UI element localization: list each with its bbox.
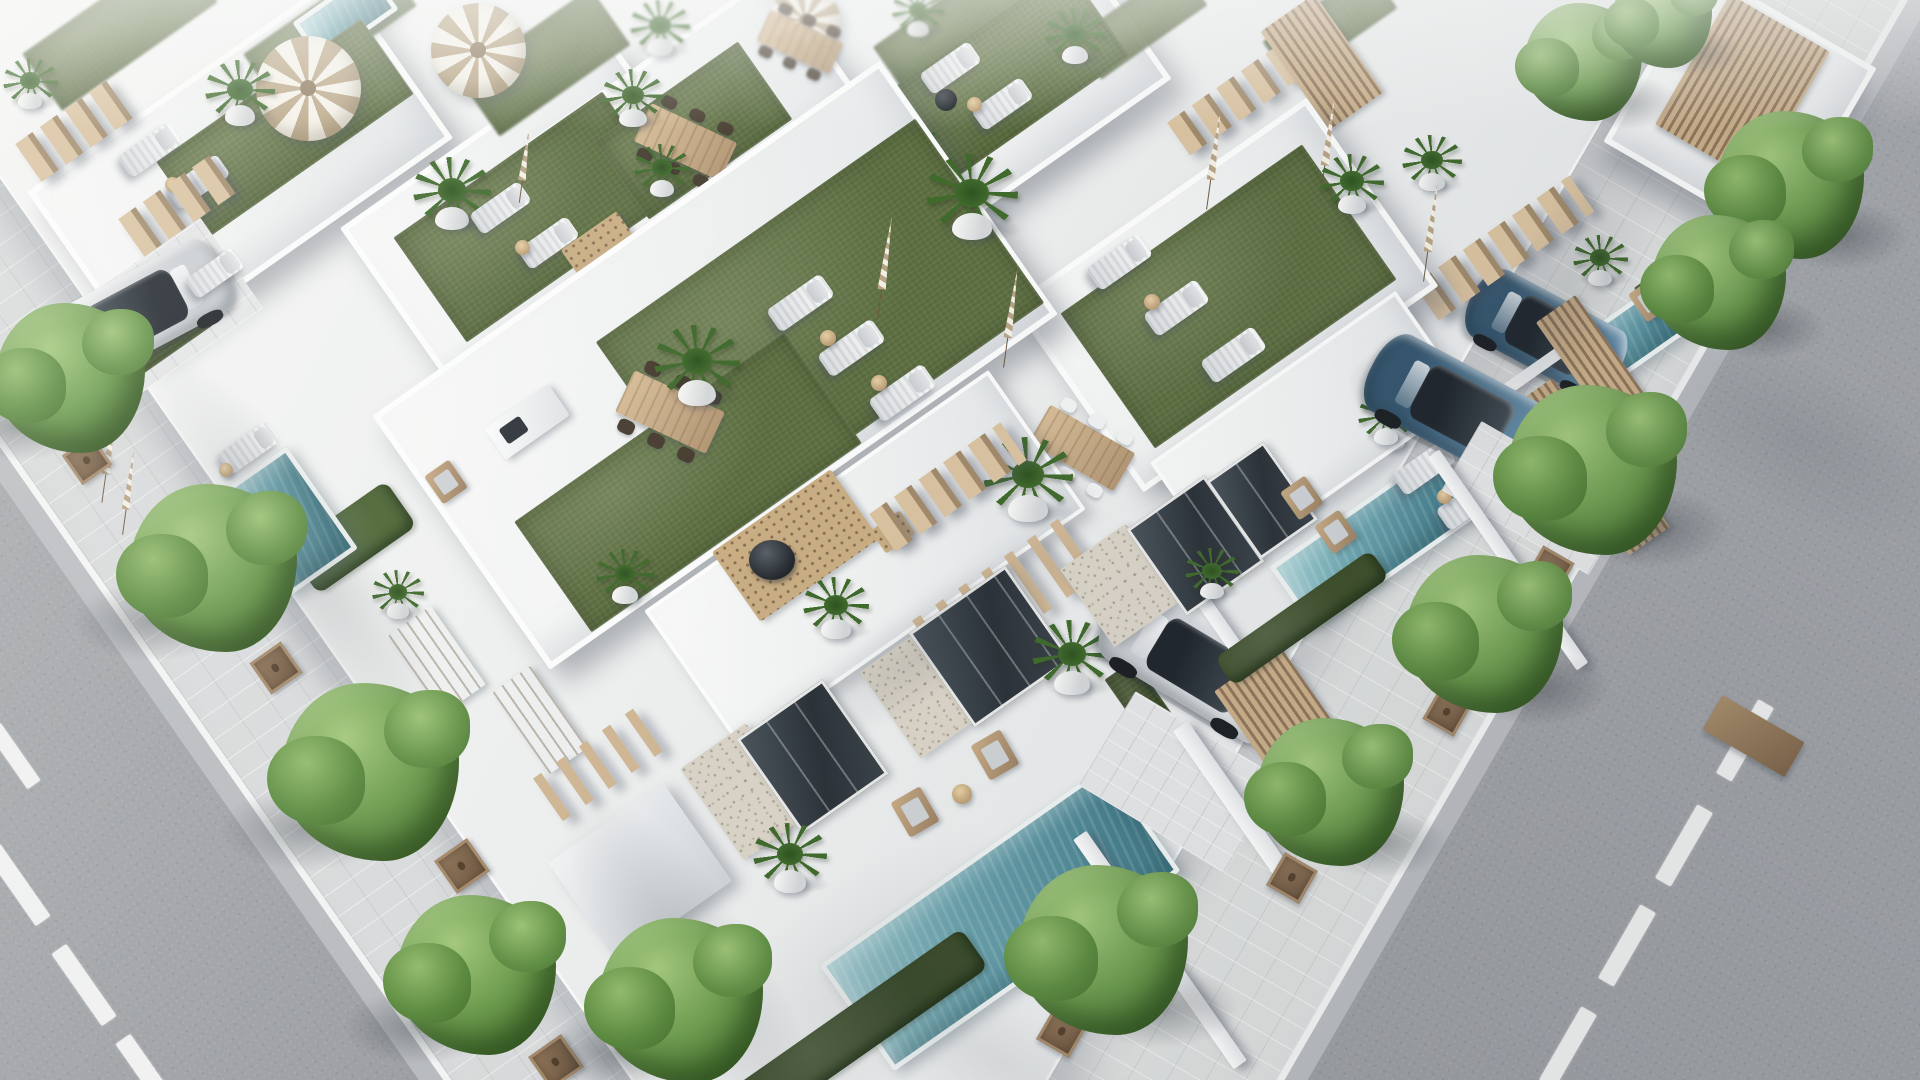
potted-palm bbox=[602, 69, 664, 131]
street-tree bbox=[396, 895, 556, 1055]
potted-palm bbox=[926, 154, 1018, 246]
lane-marking bbox=[51, 944, 116, 1026]
lane-marking bbox=[115, 1034, 180, 1080]
street-tree bbox=[598, 918, 763, 1080]
potted-palm bbox=[634, 144, 690, 200]
aerial-villa-development-render: Aerial 3D architectural rendering of a m… bbox=[0, 0, 1920, 1080]
potted-palm bbox=[372, 570, 424, 622]
side-table bbox=[515, 240, 530, 255]
lane-marking bbox=[1598, 904, 1656, 987]
side-table bbox=[967, 97, 982, 112]
side-table bbox=[1144, 294, 1160, 310]
side-table bbox=[871, 375, 887, 391]
side-table bbox=[219, 463, 233, 477]
street-tree bbox=[1405, 555, 1563, 713]
potted-palm bbox=[1185, 548, 1239, 602]
street-tree bbox=[1256, 718, 1404, 866]
potted-palm bbox=[630, 0, 690, 60]
street-tree bbox=[0, 303, 145, 453]
street-tree bbox=[1651, 215, 1786, 350]
wooden-deck-chair bbox=[970, 729, 1019, 781]
wooden-deck-chair bbox=[890, 786, 939, 838]
potted-palm bbox=[205, 60, 275, 130]
potted-palm bbox=[1573, 235, 1628, 290]
open-parasol bbox=[431, 3, 526, 98]
street-tree bbox=[129, 484, 297, 652]
outdoor-shower bbox=[935, 89, 957, 111]
lane-marking bbox=[1655, 804, 1713, 887]
lane-marking bbox=[1539, 1006, 1597, 1080]
potted-palm bbox=[803, 577, 869, 643]
potted-palm bbox=[596, 549, 654, 607]
side-table bbox=[820, 330, 836, 346]
lane-marking bbox=[0, 844, 51, 926]
potted-palm bbox=[654, 325, 740, 411]
lane-marking bbox=[0, 723, 41, 790]
side-table bbox=[952, 784, 972, 804]
potted-palm bbox=[892, 0, 944, 40]
street-tree bbox=[1018, 865, 1188, 1035]
barbecue-grill bbox=[749, 540, 795, 580]
street-tree bbox=[1612, 0, 1712, 68]
potted-palm bbox=[1045, 8, 1105, 68]
potted-palm bbox=[3, 58, 58, 113]
street-tree bbox=[1507, 385, 1677, 555]
potted-palm bbox=[753, 823, 827, 897]
street-tree bbox=[281, 683, 459, 861]
potted-palm bbox=[1320, 154, 1384, 218]
scene-objects bbox=[0, 0, 1920, 1080]
